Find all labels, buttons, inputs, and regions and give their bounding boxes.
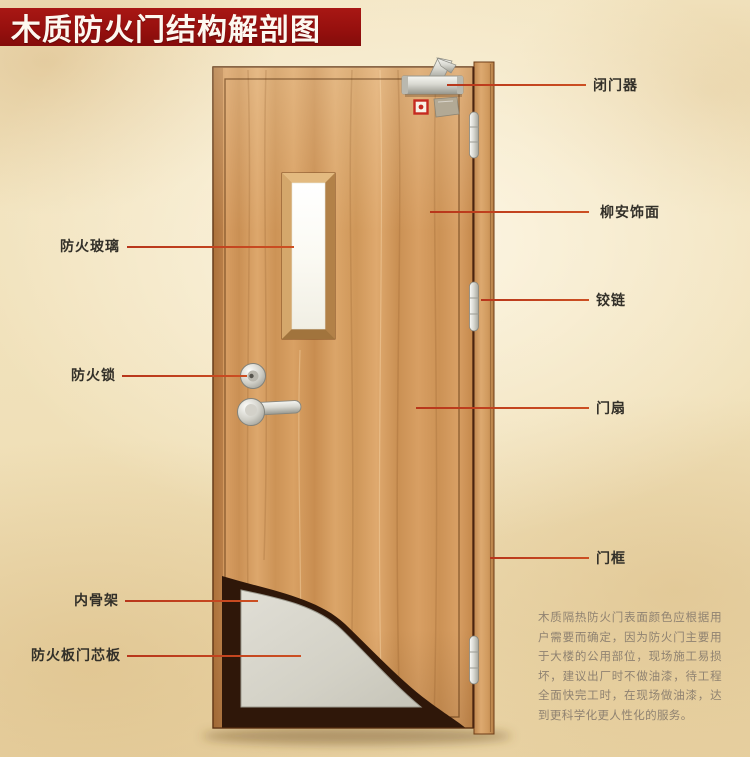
alarm-indicator xyxy=(415,101,428,114)
leader-line-fire-lock xyxy=(122,375,247,377)
leader-line-lauan-veneer xyxy=(430,211,589,213)
label-door-leaf: 门扇 xyxy=(596,398,626,418)
page: 木质防火门结构解剖图 xyxy=(0,0,750,757)
label-door-closer: 闭门器 xyxy=(593,75,638,95)
label-door-frame: 门框 xyxy=(596,548,626,568)
leader-line-fire-glass xyxy=(127,246,294,248)
leader-line-door-closer xyxy=(447,84,586,86)
label-hinge: 铰链 xyxy=(596,290,626,310)
door-frame-strip xyxy=(474,62,494,734)
label-fire-lock: 防火锁 xyxy=(71,365,116,385)
leader-line-inner-skeleton xyxy=(125,600,258,602)
leader-line-hinge xyxy=(481,299,589,301)
leader-line-door-leaf xyxy=(416,407,589,409)
label-fire-glass: 防火玻璃 xyxy=(60,236,120,256)
description-text: 木质隔热防火门表面颜色应根据用户需要而确定，因为防火门主要用于大楼的公用部位，现… xyxy=(538,609,722,726)
metal-plate xyxy=(434,97,459,117)
fire-glass-window xyxy=(282,173,335,339)
door-shadow xyxy=(202,727,512,745)
leader-line-fire-board-core xyxy=(127,655,301,657)
label-inner-skeleton: 内骨架 xyxy=(74,590,119,610)
hinge-middle xyxy=(470,282,479,331)
leader-line-door-frame xyxy=(490,557,589,559)
door-closer xyxy=(402,58,463,97)
hinge-bottom xyxy=(470,636,479,684)
label-fire-board-core: 防火板门芯板 xyxy=(31,645,121,665)
label-lauan-veneer: 柳安饰面 xyxy=(600,202,660,222)
hinge-top xyxy=(470,112,479,158)
